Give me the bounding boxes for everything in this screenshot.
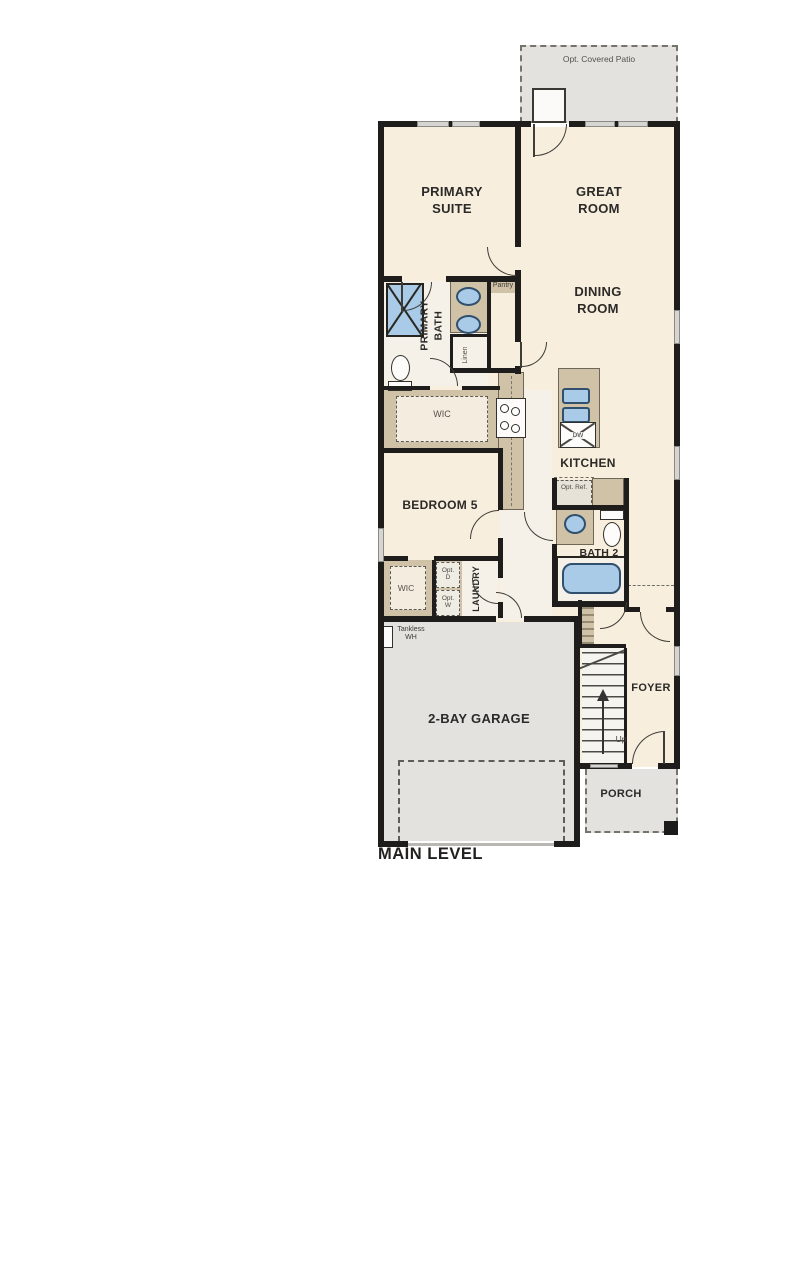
counter-centerline — [511, 376, 512, 506]
stairs-up-label: Up — [608, 735, 634, 745]
garage-label: 2-BAY GARAGE — [424, 711, 534, 728]
opt-dryer-box: Opt. D — [436, 562, 460, 588]
primary-sink-1 — [456, 287, 481, 306]
linen-label: Linen — [462, 332, 470, 378]
pantry-label: Pantry — [491, 282, 515, 290]
opt-washer-box: Opt. W — [436, 590, 460, 616]
wall — [378, 121, 384, 847]
primary-toilet-bowl — [391, 355, 410, 381]
wall — [624, 607, 640, 612]
opt-dryer-label: Opt. D — [439, 567, 457, 582]
tankless-water-heater — [383, 626, 393, 648]
bath2-sink — [564, 514, 586, 534]
window — [378, 528, 384, 562]
wall — [487, 281, 491, 371]
wall — [624, 478, 629, 608]
bathtub-fixture — [562, 563, 621, 594]
stair-chase — [580, 602, 594, 644]
bath2-toilet-bowl — [603, 522, 621, 547]
dishwasher-fixture: DW — [560, 422, 596, 448]
wall — [578, 600, 582, 646]
window — [452, 121, 480, 127]
window — [674, 446, 680, 480]
tankless-wh-label: Tankless WH — [394, 626, 428, 642]
stair-arrow-stem — [602, 700, 604, 754]
window — [618, 121, 648, 127]
stair-arrow-head — [597, 689, 609, 701]
bath2-label: BATH 2 — [572, 547, 626, 561]
wall — [552, 505, 628, 510]
wall — [574, 616, 580, 847]
wall — [524, 616, 580, 622]
window — [590, 764, 618, 768]
bedroom5-label: BEDROOM 5 — [382, 498, 498, 514]
counter-by-ref — [592, 478, 624, 508]
garage-door-zone — [398, 760, 565, 842]
opt-washer-label: Opt. W — [439, 595, 457, 610]
bath2-toilet-tank — [600, 510, 624, 520]
window — [585, 121, 615, 127]
laundry-label: LAUNDRY — [471, 559, 483, 619]
patio-label: Opt. Covered Patio — [522, 55, 676, 65]
floor-plan: DW Opt. Ref. Opt. D Opt. W — [0, 0, 800, 1280]
wic-bedroom-label: WIC — [386, 584, 426, 594]
wall — [515, 121, 521, 247]
floor-transition-dash — [628, 585, 674, 586]
wall — [434, 556, 502, 561]
wall — [552, 544, 557, 607]
porch-label: PORCH — [592, 787, 650, 801]
wall — [450, 336, 453, 370]
wall — [462, 386, 500, 390]
wall — [624, 648, 627, 766]
opt-ref-box: Opt. Ref. — [556, 480, 592, 508]
wall — [498, 560, 503, 578]
opt-ref-label: Opt. Ref. — [560, 484, 588, 491]
dishwasher-label: DW — [569, 432, 587, 439]
wall — [450, 368, 516, 373]
wall — [432, 560, 436, 618]
dining-room-label: DINING ROOM — [557, 284, 639, 318]
wall — [384, 276, 402, 282]
window — [674, 646, 680, 676]
island-sink — [562, 388, 590, 424]
wall — [580, 644, 626, 648]
primary-bath-label: PRIMARY BATH — [418, 286, 445, 366]
wall — [378, 448, 502, 453]
patio-step — [532, 88, 566, 123]
cooktop-fixture — [496, 398, 526, 438]
foyer-label: FOYER — [626, 681, 676, 695]
wall — [384, 386, 430, 390]
great-room-label: GREAT ROOM — [558, 184, 640, 218]
kitchen-label: KITCHEN — [546, 456, 630, 472]
wall — [498, 448, 503, 510]
plan-title: MAIN LEVEL — [378, 845, 548, 865]
porch-column — [664, 821, 678, 835]
kitchen-opening-dash — [554, 477, 594, 478]
window — [674, 310, 680, 344]
window — [417, 121, 449, 127]
primary-suite-label: PRIMARY SUITE — [402, 184, 502, 218]
wic-primary-label: WIC — [420, 409, 464, 419]
